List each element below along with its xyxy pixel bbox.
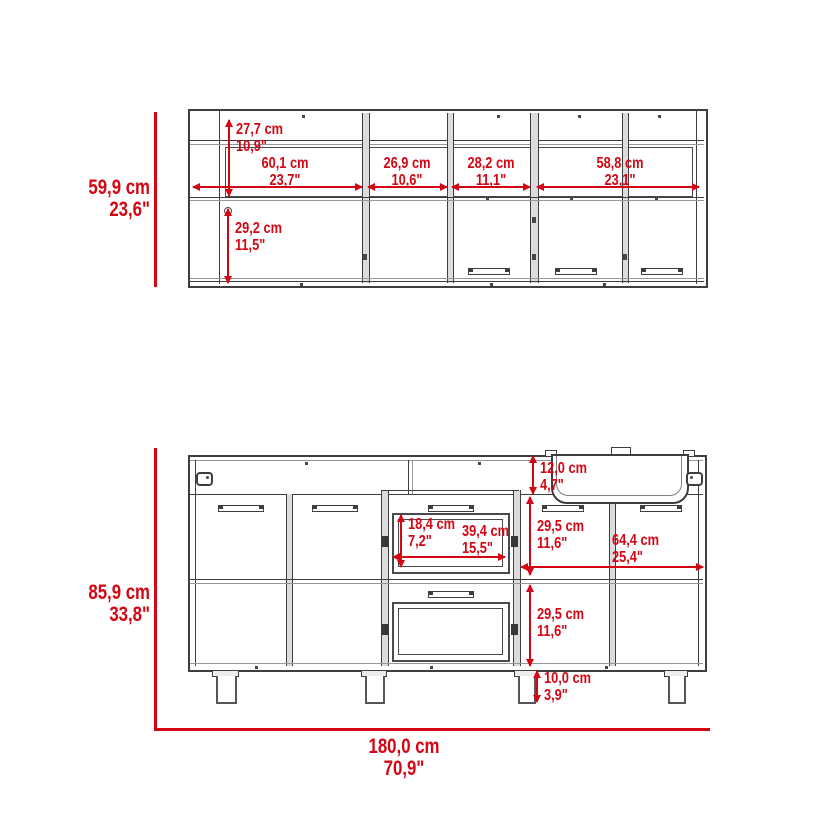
dim-label-wall-height: 59,9 cm 23,6" [62, 177, 150, 221]
dim-cm: 27,7 cm [236, 122, 283, 139]
dim-in: 3,9" [544, 688, 591, 705]
screw-dot [300, 283, 303, 286]
dim-cm: 180,0 cm [356, 736, 452, 758]
dim-cm: 29,2 cm [235, 221, 282, 238]
dim-cm: 29,5 cm [537, 607, 584, 624]
dim-label-base-width: 180,0 cm 70,9" [356, 736, 452, 780]
dim-label-oven-window-width: 39,4 cm 15,5" [462, 524, 509, 558]
dim-arrow-leg-height [536, 671, 538, 702]
dim-in: 11,6" [537, 624, 584, 641]
dim-in: 11,1" [443, 173, 539, 190]
wall-door-handle-3 [641, 268, 683, 275]
dim-cm: 39,4 cm [462, 524, 509, 541]
hinge-mark [532, 217, 536, 223]
dim-in: 33,8" [62, 604, 150, 626]
dim-line-wall-height [154, 112, 157, 287]
dim-in: 11,5" [235, 238, 282, 255]
dim-cm: 18,4 cm [408, 517, 455, 534]
screw-dot [497, 115, 500, 118]
wall-door-bottom-line-2 [190, 281, 704, 282]
dim-label-upper-door: 29,5 cm 11,6" [537, 519, 584, 553]
dim-cm: 59,9 cm [62, 177, 150, 199]
dim-in: 10,9" [236, 139, 283, 156]
dim-label-wall-section-2: 26,9 cm 10,6" [359, 156, 455, 190]
dim-cm: 60,1 cm [237, 156, 333, 173]
dimension-diagram: 59,9 cm 23,6" 27,7 cm 10,9" 29,2 cm 11,5… [0, 0, 840, 840]
dim-in: 7,2" [408, 534, 455, 551]
screw-dot [486, 197, 489, 200]
wall-shelf-line-2 [190, 200, 704, 201]
dim-label-lower-door: 29,5 cm 11,6" [537, 607, 584, 641]
dim-in: 4,7" [540, 478, 587, 495]
dim-label-oven-window-height: 18,4 cm 7,2" [408, 517, 455, 551]
dim-in: 23,7" [237, 173, 333, 190]
dim-label-wall-section-1: 60,1 cm 23,7" [237, 156, 333, 190]
dim-cm: 85,9 cm [62, 582, 150, 604]
wall-door-handle-1 [468, 268, 510, 275]
hinge-mark [623, 254, 627, 260]
dim-arrow-wall-door-height [227, 209, 229, 283]
wall-divider-2 [447, 113, 454, 283]
screw-dot [490, 283, 493, 286]
dim-cm: 28,2 cm [443, 156, 539, 173]
dim-label-top-rail: 12,0 cm 4,7" [540, 461, 587, 495]
dim-in: 23,1" [572, 173, 668, 190]
dim-arrow-upper-door [529, 497, 531, 575]
dim-cm: 29,5 cm [537, 519, 584, 536]
screw-dot [578, 115, 581, 118]
dim-label-wall-door-height: 29,2 cm 11,5" [235, 221, 282, 255]
dim-arrow-wall-top-interior [228, 120, 230, 196]
screw-dot [570, 197, 573, 200]
hinge-mark [532, 254, 536, 260]
dim-label-wall-section-4: 58,8 cm 23,1" [572, 156, 668, 190]
dim-line-base-outline [154, 448, 710, 731]
dim-label-leg-height: 10,0 cm 3,9" [544, 671, 591, 705]
screw-dot [658, 115, 661, 118]
dim-in: 23,6" [62, 199, 150, 221]
dim-arrow-lower-door [529, 585, 531, 666]
dim-cm: 12,0 cm [540, 461, 587, 478]
dim-in: 11,6" [537, 536, 584, 553]
dim-arrow-oven-window-height [400, 515, 402, 567]
dim-cm: 64,4 cm [612, 533, 659, 550]
dim-in: 70,9" [356, 758, 452, 780]
dim-label-wall-section-3: 28,2 cm 11,1" [443, 156, 539, 190]
wall-door-bottom-line [190, 278, 704, 279]
dim-arrow-top-rail [532, 456, 534, 494]
screw-dot [603, 283, 606, 286]
dim-cm: 58,8 cm [572, 156, 668, 173]
dim-cm: 26,9 cm [359, 156, 455, 173]
wall-door-handle-2 [555, 268, 597, 275]
dim-in: 15,5" [462, 541, 509, 558]
hinge-mark [363, 254, 367, 260]
dim-in: 25,4" [612, 550, 659, 567]
screw-dot [655, 197, 658, 200]
dim-label-base-height: 85,9 cm 33,8" [62, 582, 150, 626]
screw-dot [302, 115, 305, 118]
dim-in: 10,6" [359, 173, 455, 190]
dim-label-wall-top-interior: 27,7 cm 10,9" [236, 122, 283, 156]
dim-label-right-section-width: 64,4 cm 25,4" [612, 533, 659, 567]
dim-cm: 10,0 cm [544, 671, 591, 688]
wall-shelf-line [190, 197, 704, 198]
